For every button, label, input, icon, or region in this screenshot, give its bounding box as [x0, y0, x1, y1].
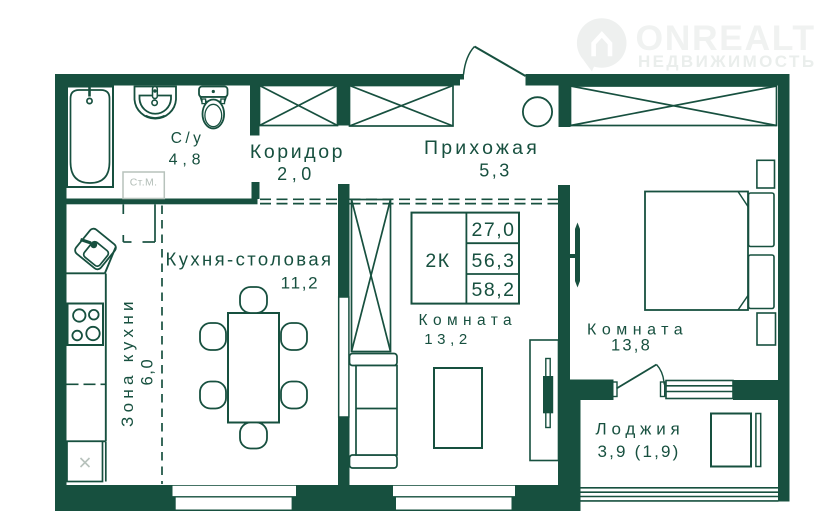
svg-text:13,8: 13,8: [611, 336, 652, 354]
svg-text:56,3: 56,3: [472, 250, 516, 272]
svg-text:Кухня-столовая: Кухня-столовая: [166, 249, 334, 270]
svg-text:11,2: 11,2: [281, 273, 320, 292]
svg-text:2К: 2К: [425, 250, 450, 272]
svg-text:6,0: 6,0: [139, 358, 157, 386]
svg-text:С/у: С/у: [171, 130, 204, 147]
svg-text:НЕДВИЖИМОСТЬ: НЕДВИЖИМОСТЬ: [638, 52, 816, 71]
svg-text:Коридор: Коридор: [250, 141, 345, 163]
svg-text:Зона кухни: Зона кухни: [118, 297, 137, 427]
svg-text:3,9 (1,9): 3,9 (1,9): [597, 442, 680, 461]
svg-text:Комната: Комната: [419, 312, 518, 329]
svg-text:13,2: 13,2: [424, 331, 472, 348]
svg-text:2,0: 2,0: [277, 164, 316, 184]
svg-text:Ст.М.: Ст.М.: [130, 177, 158, 189]
svg-text:Прихожая: Прихожая: [424, 137, 540, 159]
svg-text:58,2: 58,2: [472, 279, 516, 301]
svg-text:27,0: 27,0: [472, 219, 516, 241]
svg-text:5,3: 5,3: [479, 160, 512, 180]
svg-text:Лоджия: Лоджия: [595, 419, 684, 438]
svg-text:4,8: 4,8: [169, 151, 206, 168]
